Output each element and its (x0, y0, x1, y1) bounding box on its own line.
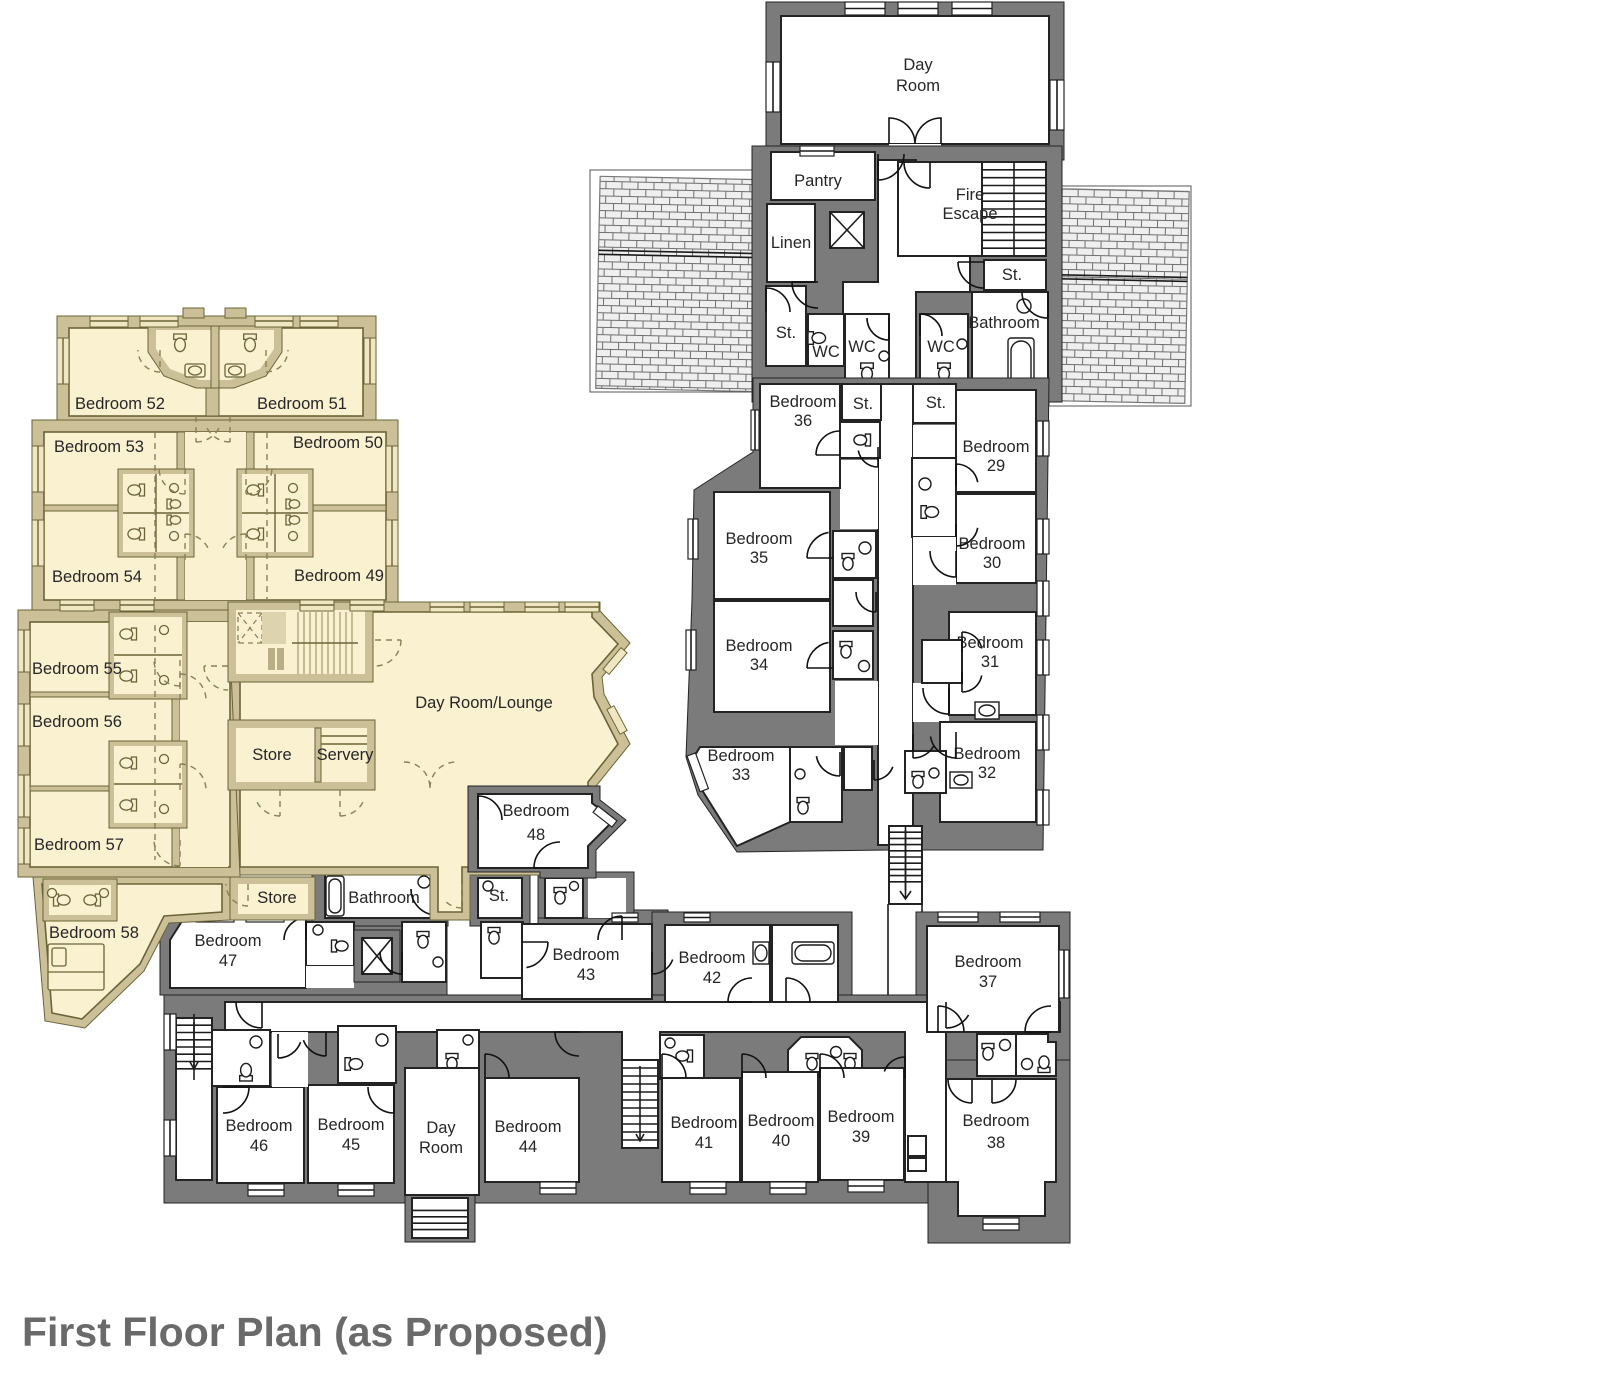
svg-text:Bedroom: Bedroom (318, 1116, 385, 1134)
svg-text:44: 44 (519, 1138, 537, 1156)
svg-text:St.: St. (853, 395, 873, 413)
svg-text:36: 36 (794, 412, 812, 430)
svg-text:Bedroom: Bedroom (957, 634, 1024, 652)
svg-text:WC: WC (927, 338, 955, 356)
svg-text:Bedroom: Bedroom (828, 1108, 895, 1126)
svg-text:Bedroom 52: Bedroom 52 (75, 395, 165, 413)
svg-text:Bathroom: Bathroom (348, 889, 420, 907)
svg-text:Bedroom: Bedroom (959, 535, 1026, 553)
svg-text:46: 46 (250, 1137, 268, 1155)
svg-text:Linen: Linen (771, 234, 811, 252)
svg-text:Bedroom: Bedroom (726, 637, 793, 655)
svg-text:Bedroom: Bedroom (963, 438, 1030, 456)
svg-text:Bedroom: Bedroom (495, 1118, 562, 1136)
svg-text:41: 41 (695, 1134, 713, 1152)
svg-text:Day Room/Lounge: Day Room/Lounge (415, 694, 553, 712)
svg-text:30: 30 (983, 554, 1001, 572)
svg-text:Bedroom: Bedroom (671, 1114, 738, 1132)
svg-text:Fire: Fire (956, 186, 984, 204)
svg-text:Escape: Escape (942, 205, 997, 223)
svg-text:Bedroom: Bedroom (748, 1112, 815, 1130)
svg-text:47: 47 (219, 952, 237, 970)
svg-text:Bedroom 56: Bedroom 56 (32, 713, 122, 731)
svg-text:38: 38 (987, 1134, 1005, 1152)
svg-text:Bedroom: Bedroom (770, 393, 837, 411)
svg-text:WC: WC (812, 343, 840, 361)
svg-text:43: 43 (577, 966, 595, 984)
svg-text:Store: Store (252, 746, 291, 764)
svg-text:Bedroom: Bedroom (955, 953, 1022, 971)
svg-text:40: 40 (772, 1132, 790, 1150)
svg-text:42: 42 (703, 969, 721, 987)
svg-text:37: 37 (979, 973, 997, 991)
svg-text:First Floor Plan (as Proposed): First Floor Plan (as Proposed) (22, 1309, 607, 1355)
svg-text:Pantry: Pantry (794, 172, 842, 190)
svg-text:Bedroom: Bedroom (553, 946, 620, 964)
svg-text:St.: St. (1002, 266, 1022, 284)
svg-text:Bathroom: Bathroom (968, 314, 1040, 332)
svg-text:Bedroom 57: Bedroom 57 (34, 836, 124, 854)
svg-text:St.: St. (926, 394, 946, 412)
svg-text:Room: Room (419, 1139, 463, 1157)
svg-text:Bedroom: Bedroom (708, 747, 775, 765)
svg-text:Bedroom: Bedroom (954, 745, 1021, 763)
svg-text:Bedroom 55: Bedroom 55 (32, 660, 122, 678)
svg-text:34: 34 (750, 656, 768, 674)
svg-text:Bedroom 51: Bedroom 51 (257, 395, 347, 413)
svg-text:45: 45 (342, 1136, 360, 1154)
svg-text:39: 39 (852, 1128, 870, 1146)
svg-text:St.: St. (776, 324, 796, 342)
svg-text:WC: WC (848, 338, 876, 356)
svg-text:Bedroom: Bedroom (195, 932, 262, 950)
svg-text:Bedroom: Bedroom (963, 1112, 1030, 1130)
svg-text:Day: Day (903, 56, 933, 74)
svg-text:33: 33 (732, 766, 750, 784)
svg-text:Store: Store (257, 889, 296, 907)
svg-text:32: 32 (978, 764, 996, 782)
svg-text:Bedroom: Bedroom (503, 802, 570, 820)
svg-text:Bedroom 53: Bedroom 53 (54, 438, 144, 456)
svg-text:48: 48 (527, 826, 545, 844)
svg-text:35: 35 (750, 549, 768, 567)
svg-text:Bedroom: Bedroom (726, 530, 793, 548)
svg-text:Room: Room (896, 77, 940, 95)
svg-text:Bedroom: Bedroom (226, 1117, 293, 1135)
svg-text:Day: Day (426, 1119, 456, 1137)
svg-text:Bedroom 58: Bedroom 58 (49, 924, 139, 942)
svg-text:Servery: Servery (317, 746, 375, 764)
svg-text:31: 31 (981, 653, 999, 671)
svg-text:Bedroom 50: Bedroom 50 (293, 434, 383, 452)
svg-text:Bedroom 54: Bedroom 54 (52, 568, 142, 586)
svg-text:29: 29 (987, 457, 1005, 475)
svg-text:Bedroom: Bedroom (679, 949, 746, 967)
svg-text:Bedroom 49: Bedroom 49 (294, 567, 384, 585)
